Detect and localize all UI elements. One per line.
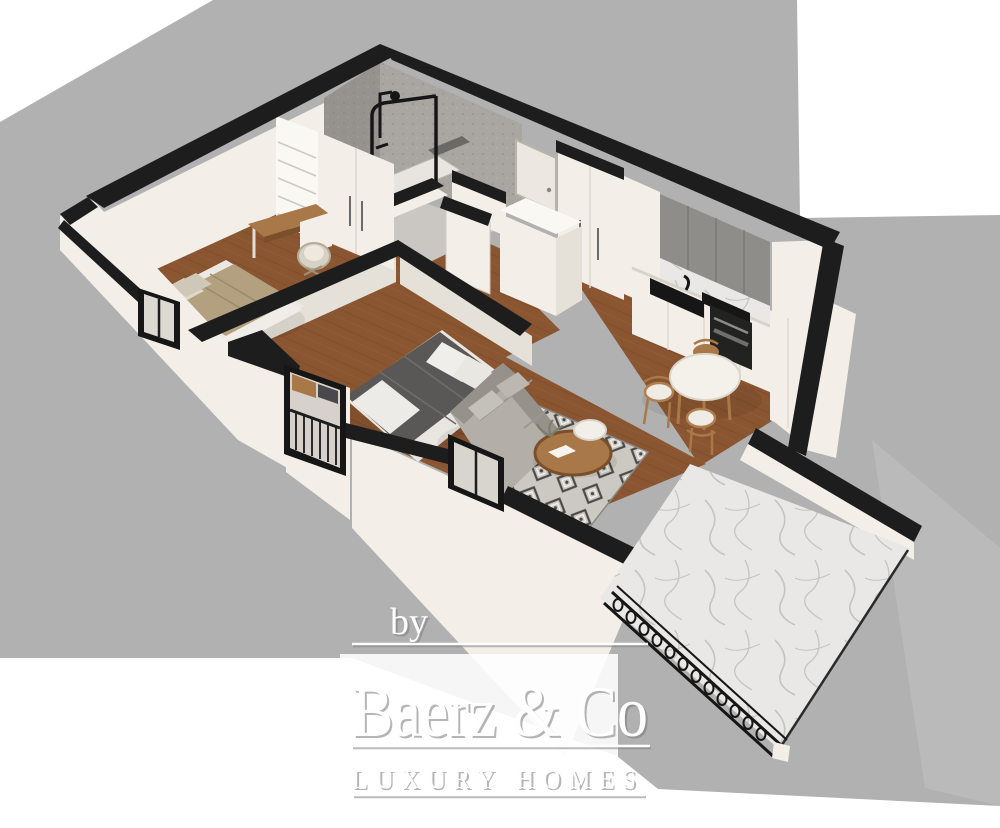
watermark-brand: Baerz & Co [352, 672, 648, 752]
floor-plan-render: by by Baerz & Co Baerz & Co LUXURY HOMES… [0, 0, 1000, 828]
watermark-tagline: LUXURY HOMES [352, 764, 644, 794]
floor-plan-svg: by by Baerz & Co Baerz & Co LUXURY HOMES… [0, 0, 1000, 828]
watermark-prefix: by [390, 601, 428, 643]
side-table [574, 420, 606, 440]
